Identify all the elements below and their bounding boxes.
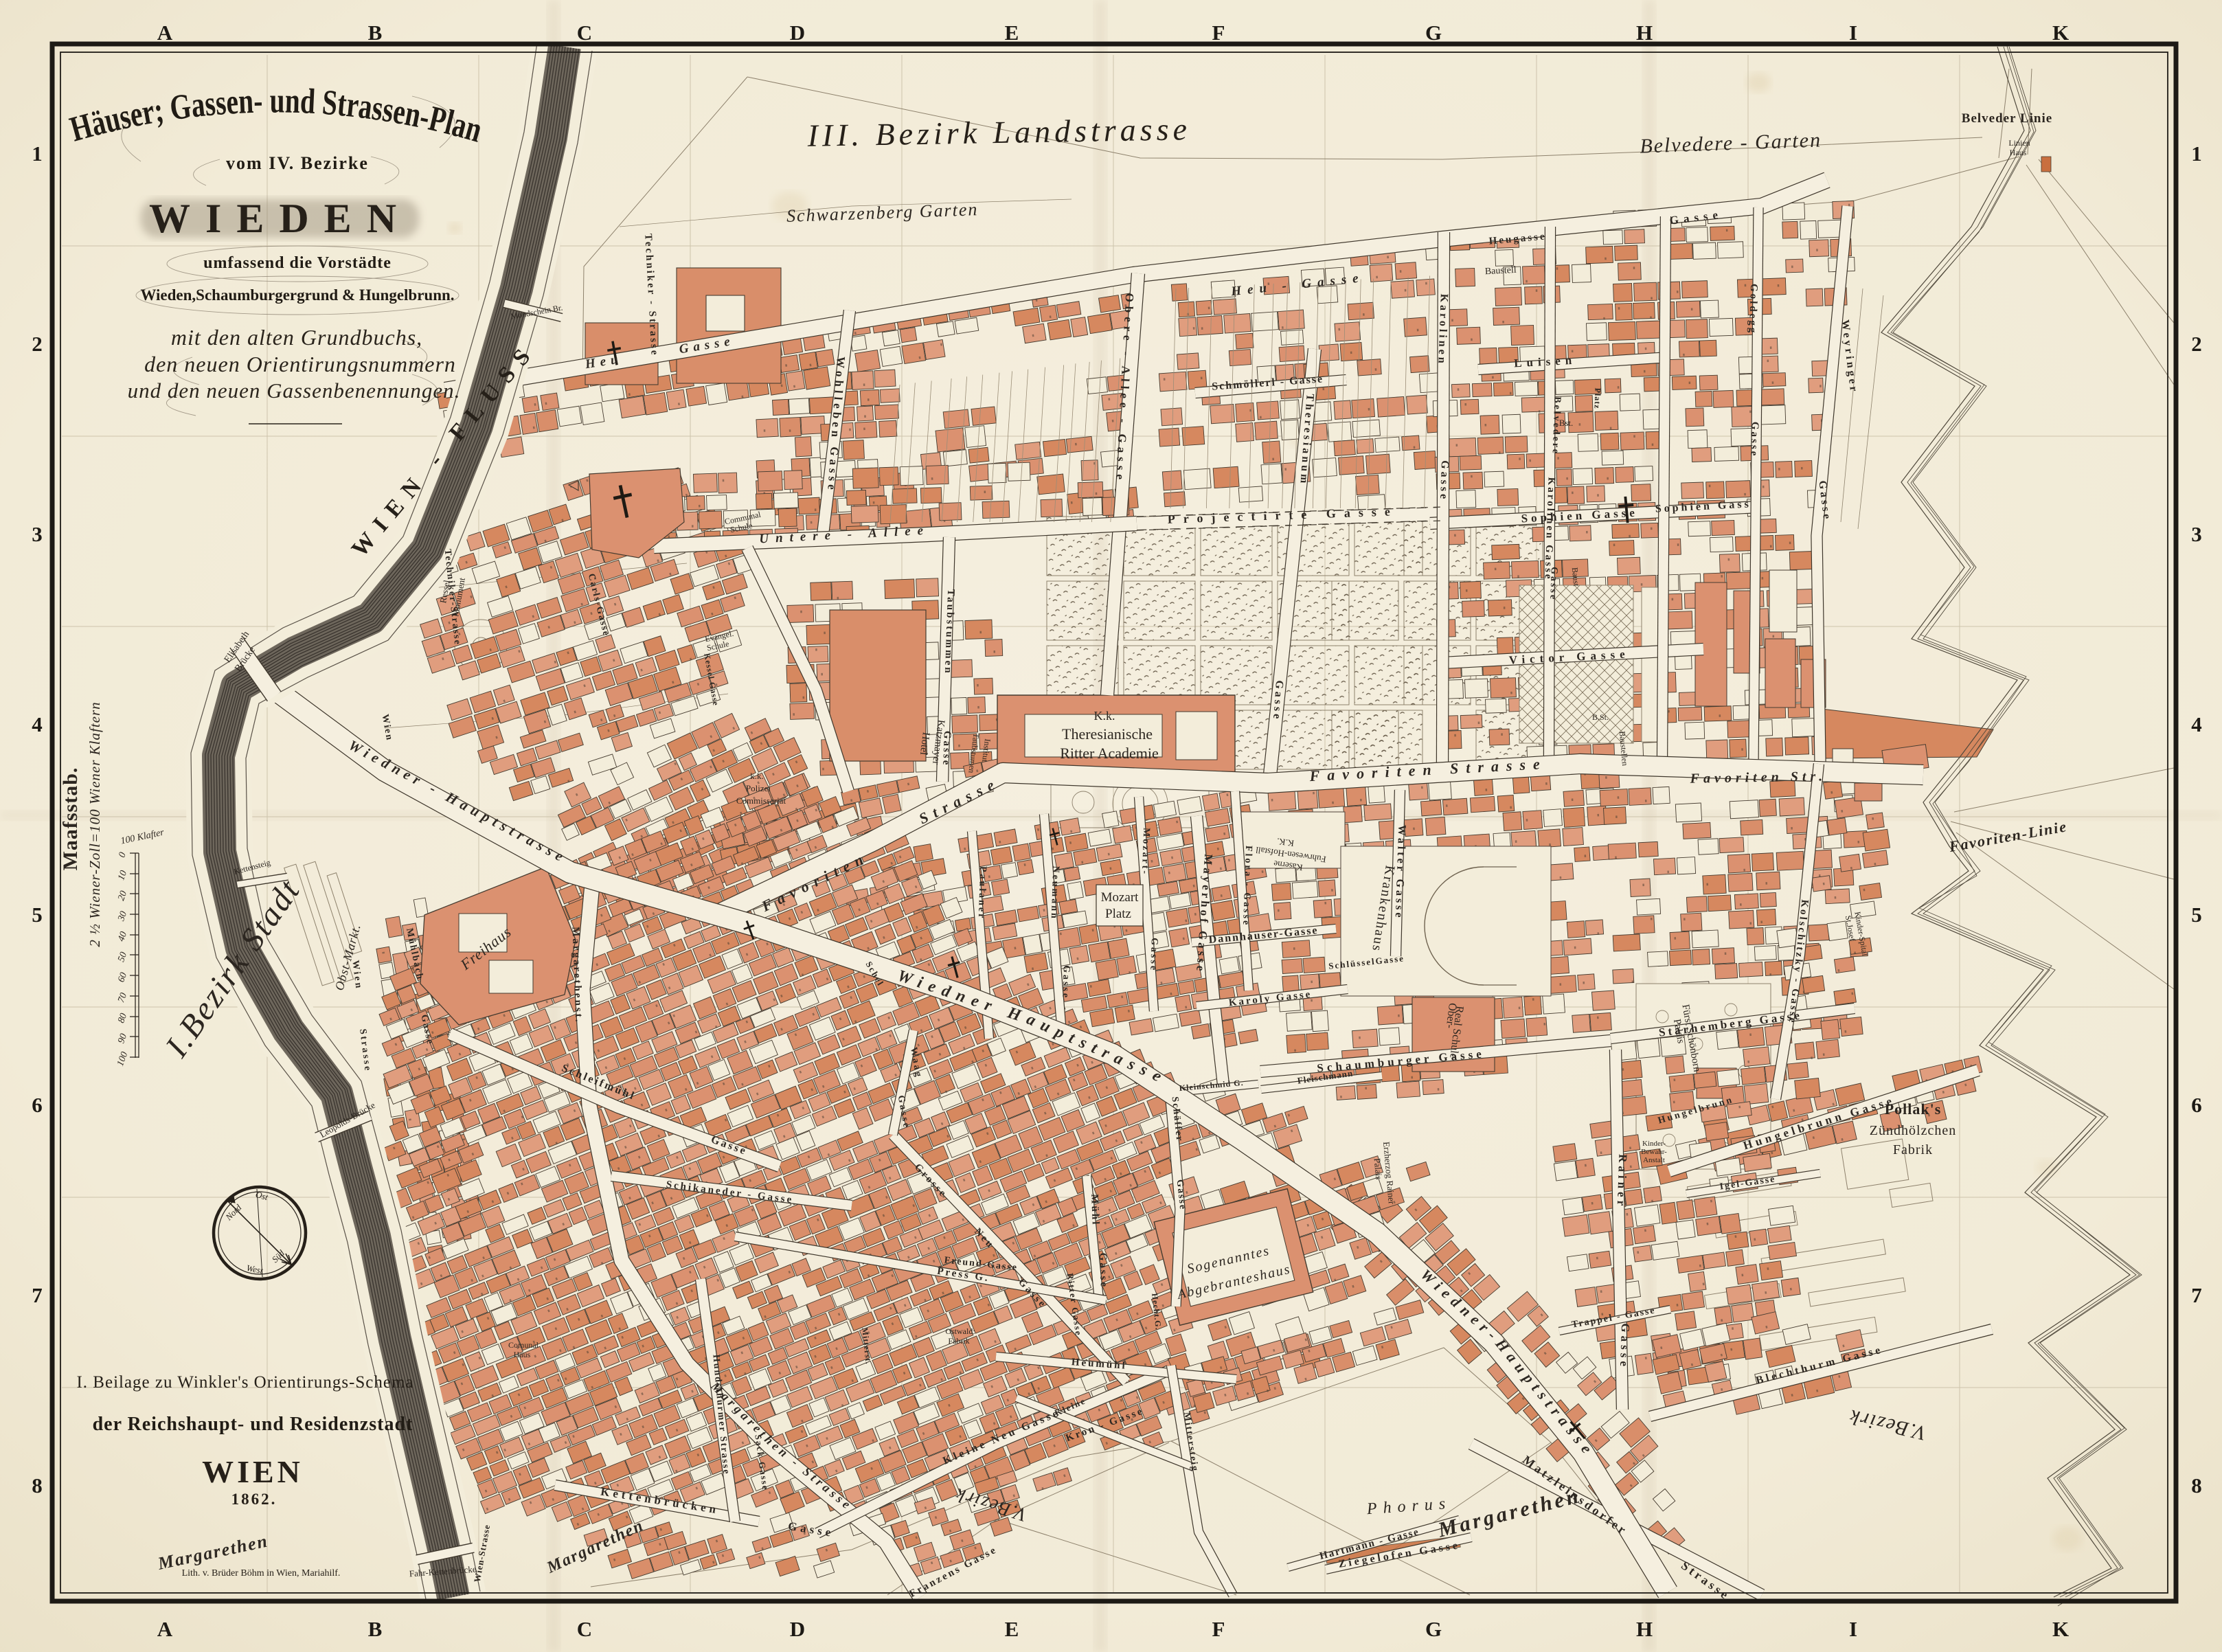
svg-text:K: K	[2052, 1617, 2069, 1641]
svg-text:Belvedere: Belvedere	[1550, 396, 1563, 455]
svg-text:4: 4	[32, 712, 43, 736]
svg-text:Palais: Palais	[1372, 1157, 1385, 1179]
svg-text:8: 8	[32, 1473, 43, 1497]
svg-text:1: 1	[2191, 142, 2202, 166]
svg-text:2 ½ Wiener-Zoll=100 Wiener Kla: 2 ½ Wiener-Zoll=100 Wiener Klaftern	[87, 701, 103, 947]
svg-text:H: H	[1636, 1617, 1653, 1641]
svg-text:F: F	[1212, 21, 1225, 45]
svg-text:7: 7	[2191, 1283, 2202, 1307]
svg-text:Mozart: Mozart	[1101, 890, 1140, 905]
svg-text:G: G	[1425, 1617, 1442, 1641]
svg-text:6: 6	[32, 1093, 43, 1117]
svg-text:Lith. v. Brüder Böhm in Wien,: Lith. v. Brüder Böhm in Wien, Mariahilf.	[182, 1568, 341, 1579]
svg-text:Platz: Platz	[1105, 907, 1131, 921]
svg-text:7: 7	[32, 1283, 43, 1307]
svg-text:I: I	[1849, 1617, 1857, 1641]
svg-text:B: B	[368, 21, 383, 45]
svg-text:K.k.: K.k.	[1094, 709, 1115, 723]
svg-text:8: 8	[2191, 1473, 2202, 1497]
svg-text:Maafsstab.: Maafsstab.	[59, 767, 82, 871]
svg-text:C: C	[577, 1617, 592, 1641]
svg-text:1: 1	[32, 142, 43, 166]
svg-text:4: 4	[2191, 712, 2202, 736]
svg-text:Gasse: Gasse	[1060, 965, 1072, 999]
svg-text:Favoriten Str.: Favoriten Str.	[1689, 769, 1826, 786]
svg-text:C: C	[577, 21, 592, 45]
svg-text:der Reichshaupt- und Residenzs: der Reichshaupt- und Residenzstadt	[93, 1414, 413, 1435]
svg-text:D: D	[790, 21, 805, 45]
svg-text:k.k.: k.k.	[750, 771, 764, 781]
svg-text:6: 6	[2191, 1093, 2202, 1117]
svg-text:Wieden,Schaumburgergrund & Hun: Wieden,Schaumburgergrund & Hungelbrunn.	[140, 286, 454, 304]
svg-text:Linien: Linien	[2008, 138, 2030, 148]
svg-text:Gasse: Gasse	[940, 731, 953, 767]
svg-text:Gasse: Gasse	[1748, 422, 1760, 458]
svg-text:WIEDEN: WIEDEN	[149, 196, 411, 241]
svg-text:Zündhölzchen: Zündhölzchen	[1870, 1123, 1956, 1138]
svg-text:Platz: Platz	[1592, 387, 1602, 409]
svg-text:1862.: 1862.	[231, 1491, 277, 1508]
svg-text:Gasse: Gasse	[1097, 1252, 1109, 1289]
svg-text:Polizei: Polizei	[746, 783, 771, 793]
svg-text:Gasse: Gasse	[1438, 460, 1451, 502]
svg-text:Rainer: Rainer	[1615, 1154, 1630, 1210]
svg-text:3: 3	[32, 522, 43, 546]
svg-text:Theresianische: Theresianische	[1062, 725, 1153, 743]
svg-text:I. Beilage zu Winkler's Orient: I. Beilage zu Winkler's Orientirungs-Sch…	[76, 1373, 413, 1392]
svg-text:Anstalt: Anstalt	[1643, 1156, 1665, 1164]
svg-text:Gasse: Gasse	[1618, 1323, 1632, 1370]
svg-text:WIEN: WIEN	[202, 1454, 304, 1489]
svg-text:Kinder-: Kinder-	[1642, 1140, 1666, 1148]
svg-text:Ostwald:: Ostwald:	[945, 1326, 975, 1336]
svg-text:2: 2	[2191, 332, 2202, 356]
svg-text:umfassend die Vorstädte: umfassend die Vorstädte	[203, 254, 392, 272]
svg-text:5: 5	[32, 903, 43, 927]
svg-text:Mühl: Mühl	[1089, 1194, 1101, 1227]
svg-text:Haus: Haus	[514, 1350, 531, 1359]
svg-text:Belveder Linie: Belveder Linie	[1962, 111, 2052, 126]
svg-text:Comunal: Comunal	[508, 1340, 539, 1350]
svg-text:mit den alten Grundbuchs,: mit den alten Grundbuchs,	[171, 325, 422, 350]
svg-text:3: 3	[2191, 522, 2202, 546]
svg-text:Neumann: Neumann	[1049, 865, 1061, 920]
svg-text:Goldegg: Goldegg	[1747, 284, 1760, 335]
svg-text:Mozart-: Mozart-	[1140, 828, 1151, 876]
svg-text:G: G	[1425, 21, 1442, 45]
svg-text:H: H	[1636, 21, 1653, 45]
svg-text:Gasse: Gasse	[1148, 938, 1159, 972]
svg-text:A: A	[157, 21, 173, 45]
svg-text:Baustell: Baustell	[1485, 265, 1517, 277]
svg-text:E: E	[1005, 21, 1019, 45]
svg-text:A: A	[157, 1617, 173, 1641]
svg-text:D: D	[790, 1617, 805, 1641]
svg-text:Ritter Academie: Ritter Academie	[1060, 745, 1159, 762]
svg-text:Commissariat: Commissariat	[736, 795, 786, 806]
svg-text:Paulaner: Paulaner	[976, 866, 988, 920]
svg-text:Haus: Haus	[2010, 148, 2027, 157]
svg-text:B.St.: B.St.	[1592, 712, 1609, 722]
svg-text:B: B	[368, 1617, 383, 1641]
svg-text:5: 5	[2191, 903, 2202, 927]
svg-text:Bewahr-: Bewahr-	[1641, 1148, 1667, 1156]
svg-text:Fabrik: Fabrik	[948, 1336, 969, 1346]
svg-text:Gasse: Gasse	[1548, 567, 1559, 601]
svg-text:vom IV. Bezirke: vom IV. Bezirke	[226, 153, 369, 173]
svg-text:und den neuen Gassenbenennunge: und den neuen Gassenbenennungen.	[128, 378, 461, 403]
svg-text:K: K	[2052, 21, 2069, 45]
svg-text:F: F	[1212, 1617, 1225, 1641]
svg-text:E: E	[1005, 1617, 1019, 1641]
svg-text:Baust: Baust	[1570, 567, 1581, 587]
svg-text:I: I	[1849, 21, 1857, 45]
svg-text:2: 2	[32, 332, 43, 356]
svg-text:Fabrik: Fabrik	[1893, 1142, 1933, 1157]
svg-text:III. Bezirk Landstrasse: III. Bezirk Landstrasse	[806, 111, 1191, 153]
svg-text:den neuen Orientirungsnummern: den neuen Orientirungsnummern	[144, 352, 456, 376]
